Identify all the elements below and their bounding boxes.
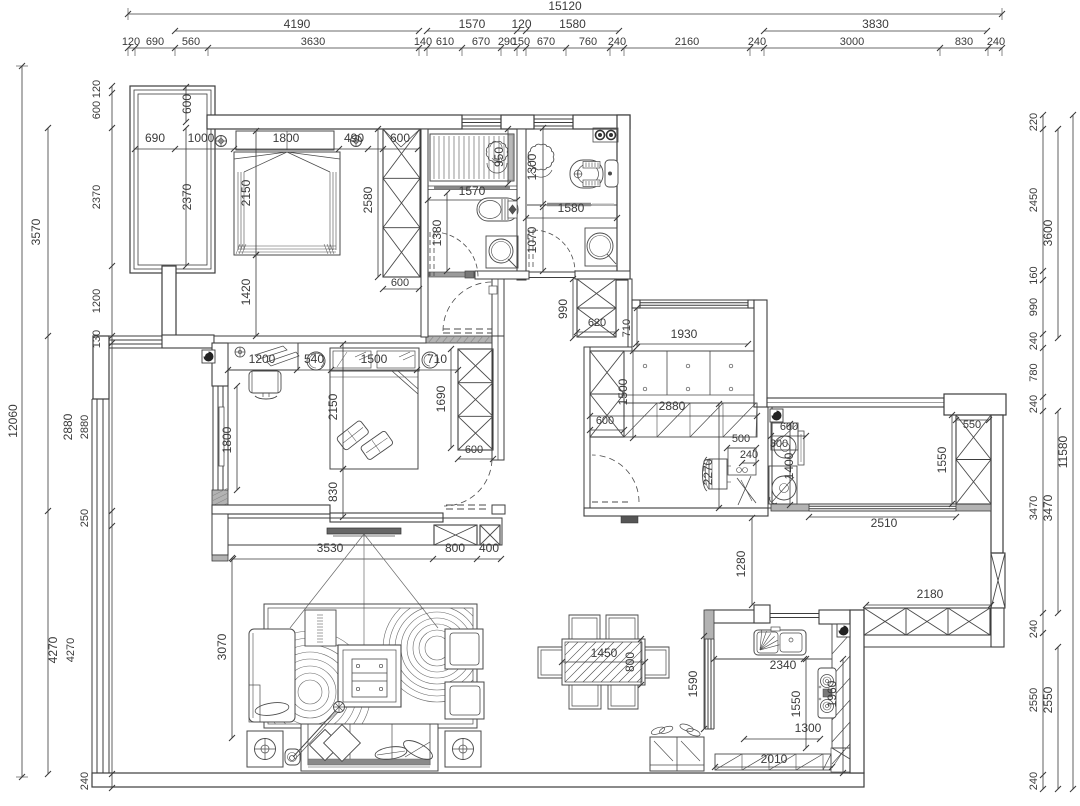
svg-text:3070: 3070: [215, 633, 229, 660]
svg-text:670: 670: [537, 36, 555, 48]
svg-text:1200: 1200: [91, 289, 103, 313]
svg-text:1300: 1300: [795, 721, 822, 735]
svg-text:610: 610: [436, 36, 454, 48]
svg-text:150: 150: [512, 36, 530, 48]
svg-text:300: 300: [770, 438, 788, 450]
svg-text:830: 830: [955, 36, 973, 48]
svg-text:240: 240: [79, 772, 91, 790]
svg-text:130: 130: [91, 330, 103, 348]
svg-text:240: 240: [1028, 772, 1040, 790]
svg-text:2880: 2880: [659, 399, 686, 413]
svg-text:2880: 2880: [79, 415, 91, 439]
svg-text:550: 550: [963, 419, 981, 431]
svg-text:2180: 2180: [917, 587, 944, 601]
svg-text:240: 240: [608, 36, 626, 48]
svg-text:240: 240: [1028, 395, 1040, 413]
svg-text:4270: 4270: [46, 636, 60, 663]
svg-text:1580: 1580: [559, 17, 586, 31]
svg-text:3830: 3830: [862, 17, 889, 31]
svg-text:1930: 1930: [671, 327, 698, 341]
svg-text:3630: 3630: [301, 36, 325, 48]
svg-text:1300: 1300: [525, 153, 539, 180]
svg-text:690: 690: [146, 36, 164, 48]
svg-text:1280: 1280: [734, 550, 748, 577]
svg-text:1800: 1800: [220, 426, 234, 453]
svg-text:240: 240: [748, 36, 766, 48]
svg-text:1690: 1690: [434, 385, 448, 412]
svg-text:1400: 1400: [782, 452, 796, 479]
svg-text:1550: 1550: [789, 690, 803, 717]
svg-text:140: 140: [414, 36, 432, 48]
svg-text:1570: 1570: [459, 184, 486, 198]
svg-text:4190: 4190: [284, 17, 311, 31]
svg-text:780: 780: [1028, 363, 1040, 381]
svg-text:1590: 1590: [686, 670, 700, 697]
svg-text:4270: 4270: [65, 638, 77, 662]
svg-text:690: 690: [145, 131, 165, 145]
svg-text:710: 710: [427, 352, 447, 366]
svg-text:250: 250: [79, 509, 91, 527]
svg-text:2550: 2550: [1028, 688, 1040, 712]
svg-text:1500: 1500: [616, 378, 630, 405]
svg-text:2550: 2550: [1041, 686, 1055, 713]
svg-text:990: 990: [556, 299, 570, 319]
svg-text:600: 600: [596, 415, 614, 427]
svg-text:760: 760: [579, 36, 597, 48]
svg-text:1550: 1550: [935, 446, 949, 473]
svg-text:560: 560: [182, 36, 200, 48]
svg-text:540: 540: [304, 352, 324, 366]
svg-text:2880: 2880: [61, 413, 75, 440]
svg-text:620: 620: [588, 317, 606, 329]
svg-text:1960: 1960: [825, 680, 839, 707]
svg-text:120: 120: [122, 36, 140, 48]
svg-text:600: 600: [465, 444, 483, 456]
svg-text:950: 950: [492, 147, 506, 167]
svg-text:600: 600: [391, 277, 409, 289]
svg-text:3600: 3600: [1041, 219, 1055, 246]
svg-text:2150: 2150: [326, 393, 340, 420]
svg-text:12060: 12060: [6, 404, 20, 438]
svg-text:3470: 3470: [1041, 494, 1055, 521]
svg-text:1420: 1420: [239, 278, 253, 305]
svg-text:800: 800: [623, 652, 637, 672]
svg-text:990: 990: [1028, 298, 1040, 316]
svg-text:11580: 11580: [1056, 435, 1070, 468]
svg-text:670: 670: [472, 36, 490, 48]
svg-text:400: 400: [479, 541, 499, 555]
svg-text:500: 500: [732, 433, 750, 445]
svg-text:2160: 2160: [675, 36, 699, 48]
svg-text:1380: 1380: [430, 219, 444, 246]
svg-text:2340: 2340: [770, 658, 797, 672]
svg-text:600: 600: [180, 94, 194, 114]
svg-text:160: 160: [1028, 266, 1040, 284]
svg-text:1000: 1000: [188, 131, 215, 145]
svg-text:600: 600: [390, 131, 410, 145]
svg-text:3530: 3530: [317, 541, 344, 555]
svg-text:830: 830: [326, 482, 340, 502]
svg-text:240: 240: [1028, 620, 1040, 638]
svg-text:1580: 1580: [558, 201, 585, 215]
svg-text:600: 600: [91, 101, 103, 119]
svg-text:240: 240: [740, 449, 758, 461]
svg-text:710: 710: [621, 319, 633, 337]
svg-text:1800: 1800: [273, 131, 300, 145]
svg-text:1570: 1570: [459, 17, 486, 31]
svg-text:1200: 1200: [249, 352, 276, 366]
svg-text:2010: 2010: [761, 752, 788, 766]
svg-text:220: 220: [1028, 113, 1040, 131]
svg-text:240: 240: [1028, 332, 1040, 350]
svg-text:600: 600: [780, 421, 798, 433]
svg-text:120: 120: [91, 80, 103, 98]
svg-text:2150: 2150: [239, 179, 253, 206]
svg-text:2370: 2370: [91, 185, 103, 209]
svg-text:240: 240: [987, 36, 1005, 48]
svg-text:1450: 1450: [591, 646, 618, 660]
svg-text:2370: 2370: [180, 183, 194, 210]
svg-text:2450: 2450: [1028, 188, 1040, 212]
svg-text:3570: 3570: [29, 218, 43, 245]
svg-text:490: 490: [344, 131, 364, 145]
svg-text:800: 800: [445, 541, 465, 555]
svg-text:120: 120: [511, 17, 531, 31]
svg-text:1500: 1500: [361, 352, 388, 366]
svg-text:15120: 15120: [548, 0, 582, 13]
svg-text:3470: 3470: [1028, 496, 1040, 520]
svg-text:2580: 2580: [361, 186, 375, 213]
svg-text:2510: 2510: [871, 516, 898, 530]
svg-text:3000: 3000: [840, 36, 864, 48]
